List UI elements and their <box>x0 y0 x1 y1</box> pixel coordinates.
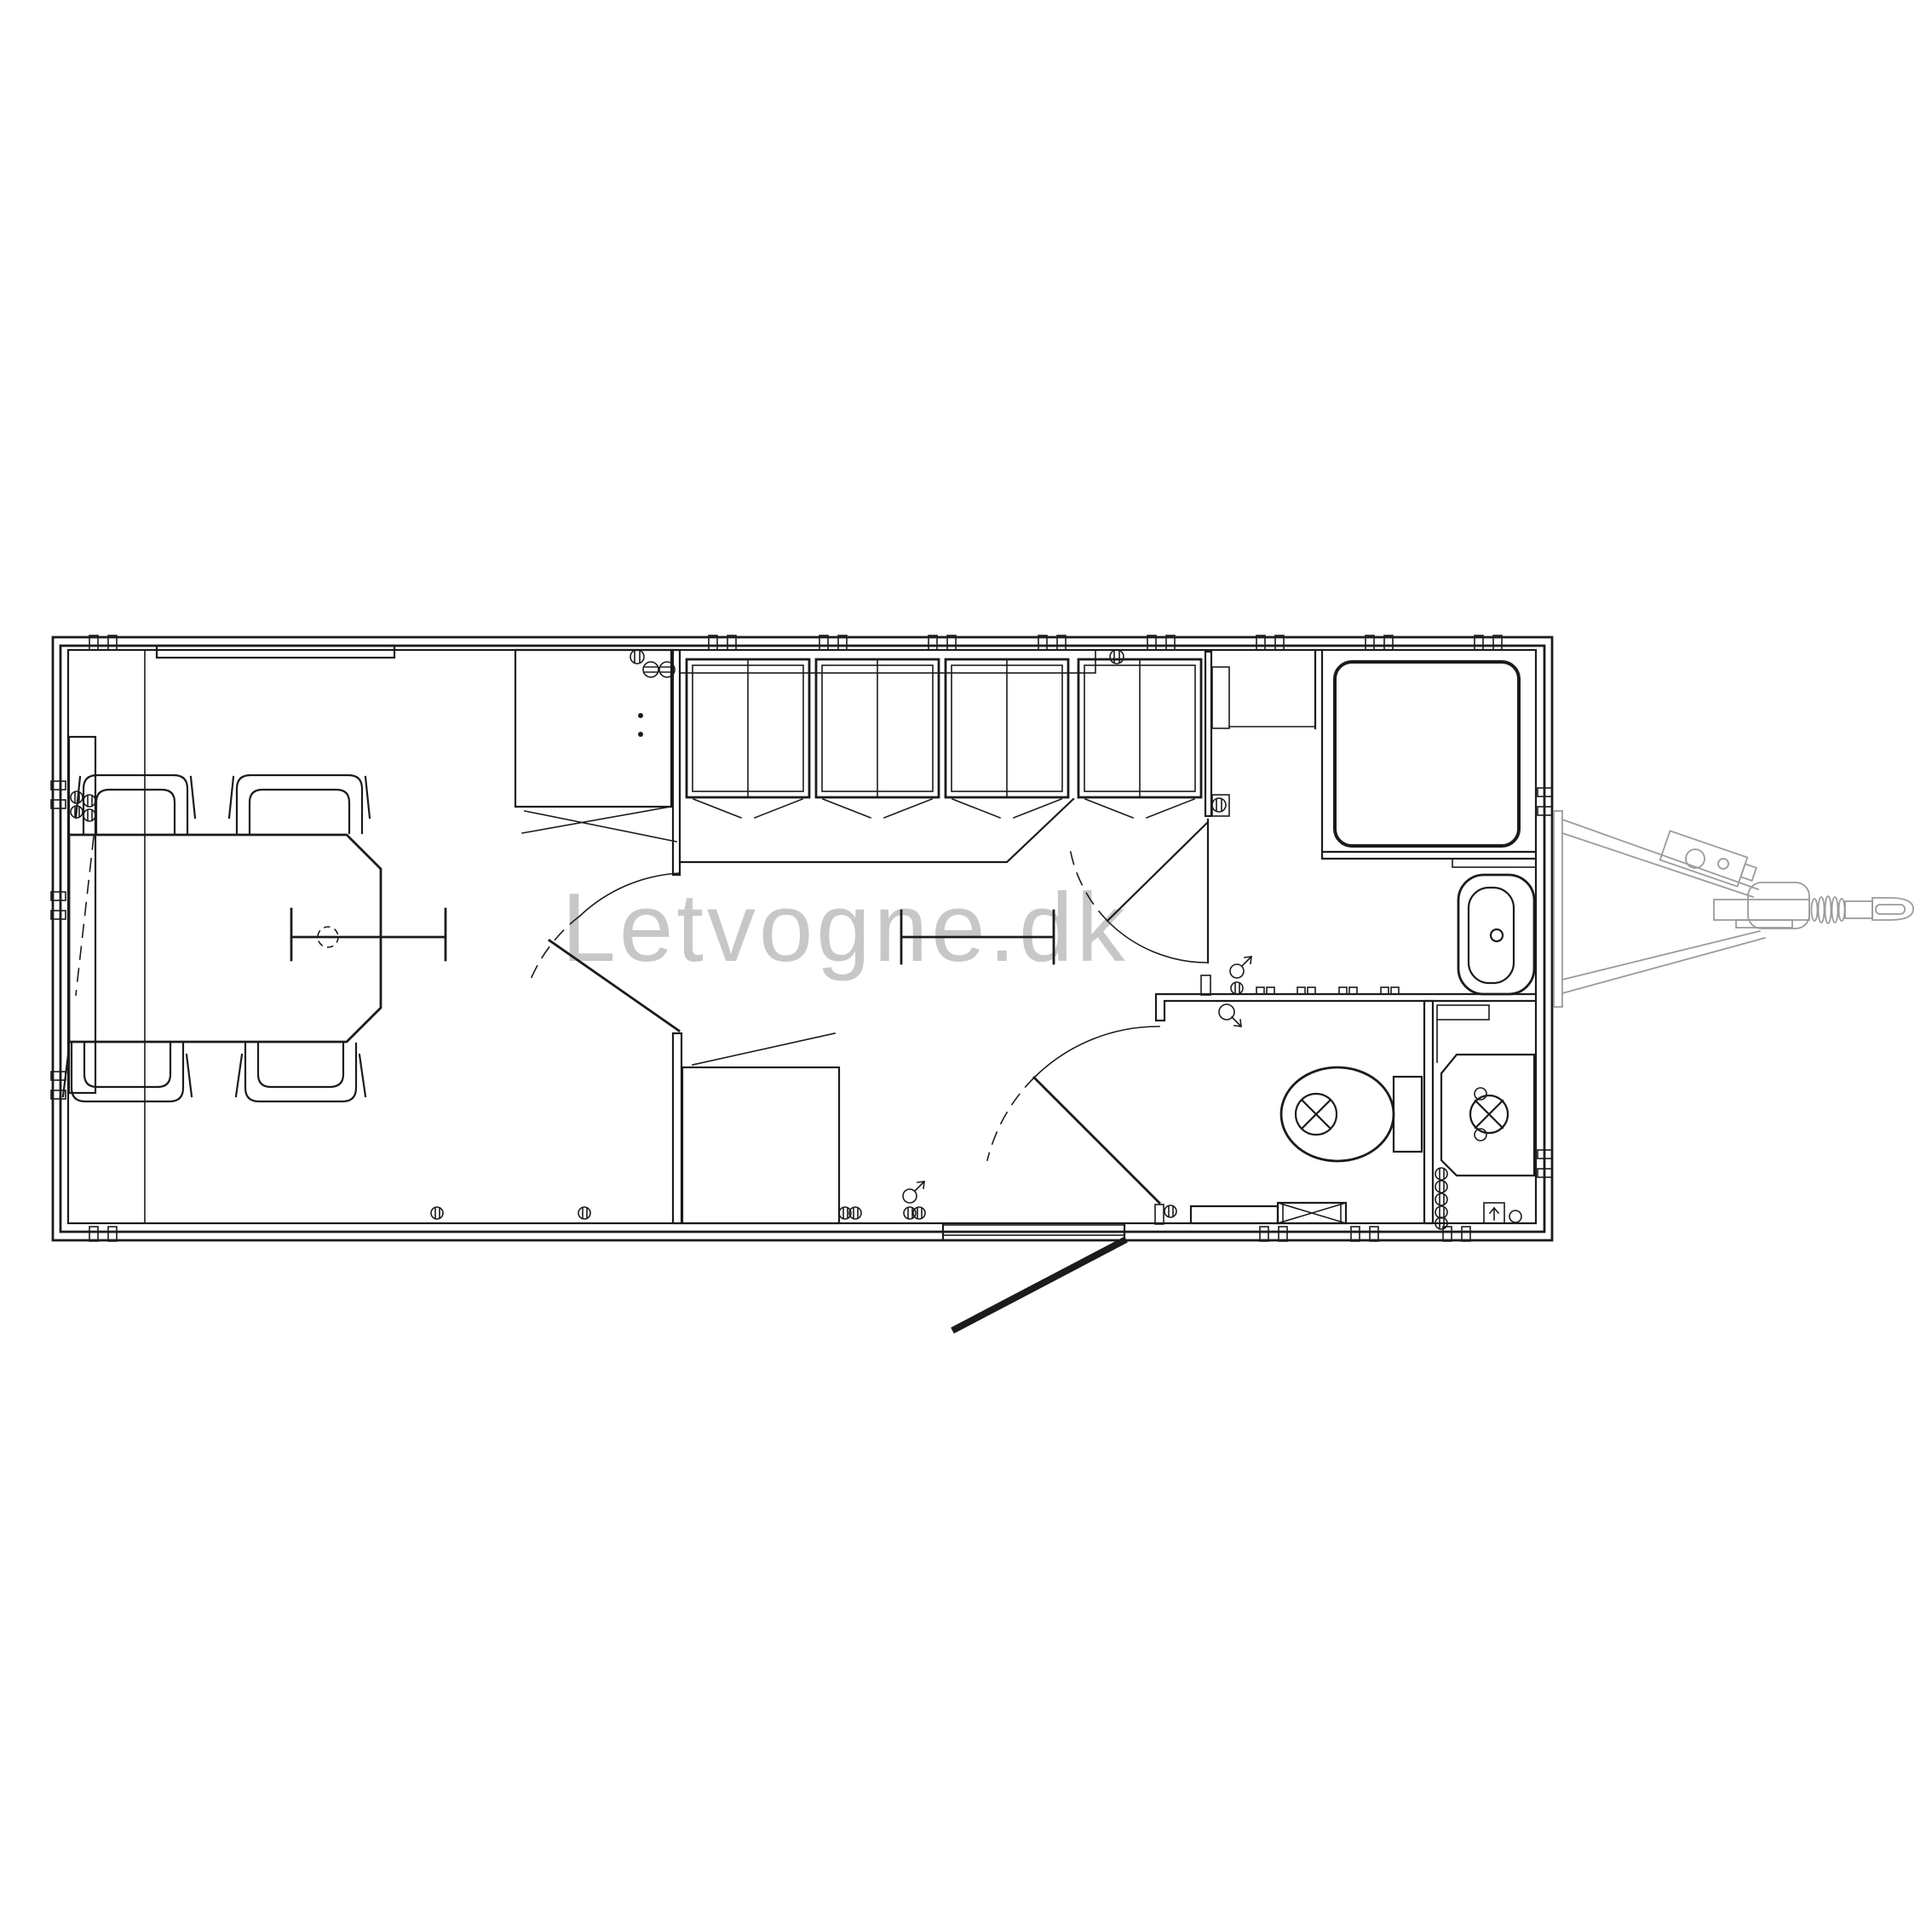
cistern <box>1394 1077 1422 1152</box>
partition-wall-lower <box>673 1033 681 1223</box>
toilet-room <box>987 957 1536 1224</box>
technical-compartment <box>1435 1005 1534 1229</box>
floor-drain <box>1484 1203 1521 1223</box>
locker-unit-3 <box>946 659 1068 818</box>
water-tap-symbol <box>1219 1004 1241 1026</box>
coat-hooks <box>1256 987 1399 994</box>
coupling-head <box>1714 883 1913 929</box>
hall-symbols <box>431 1182 925 1219</box>
shower-shelf <box>1452 859 1536 867</box>
vent-top <box>1110 650 1124 664</box>
window <box>157 646 394 658</box>
counter <box>1156 994 1536 1021</box>
wall-box <box>1212 667 1229 728</box>
water-heater <box>1441 1055 1534 1176</box>
meeting-table <box>69 835 381 1042</box>
shelf <box>1437 1005 1489 1020</box>
drawbar-hitch <box>1554 811 1913 1007</box>
toilet-room-door <box>987 1026 1176 1224</box>
locker-unit-1 <box>687 659 809 818</box>
wash-basin <box>1458 875 1534 994</box>
door-jamb-top <box>1201 975 1210 995</box>
cabinet-vents <box>630 650 675 677</box>
step-box <box>1191 1203 1346 1223</box>
jockey-wheel <box>1660 831 1759 890</box>
page: Letvogne.dk <box>0 0 1932 1932</box>
storage-cabinet <box>682 1033 839 1223</box>
drawbar-arm-lower <box>1562 931 1765 993</box>
wardrobe-cabinet <box>515 650 676 842</box>
locker-top-rail <box>680 650 1095 673</box>
floor-plan-canvas: Letvogne.dk <box>0 0 1932 1932</box>
shower-tray <box>1335 662 1519 846</box>
mounting-plate <box>1554 811 1562 1007</box>
pipe-coils <box>1435 1168 1447 1229</box>
watermark: Letvogne.dk <box>561 874 1128 982</box>
toilet <box>1281 1067 1422 1161</box>
support-marker-left <box>291 909 446 960</box>
locker-unit-4 <box>1078 659 1201 818</box>
locker-room-wall <box>1205 652 1211 816</box>
side-bench <box>69 737 95 1093</box>
shower-room <box>1315 650 1536 867</box>
male-symbol <box>1230 957 1251 978</box>
chair-top-right <box>229 775 370 833</box>
chair-bottom-right <box>236 1044 365 1101</box>
locker-bench <box>680 799 1073 862</box>
left-door-swing <box>76 837 94 995</box>
locker-unit-2 <box>816 659 939 818</box>
tech-partition <box>1424 1001 1433 1223</box>
